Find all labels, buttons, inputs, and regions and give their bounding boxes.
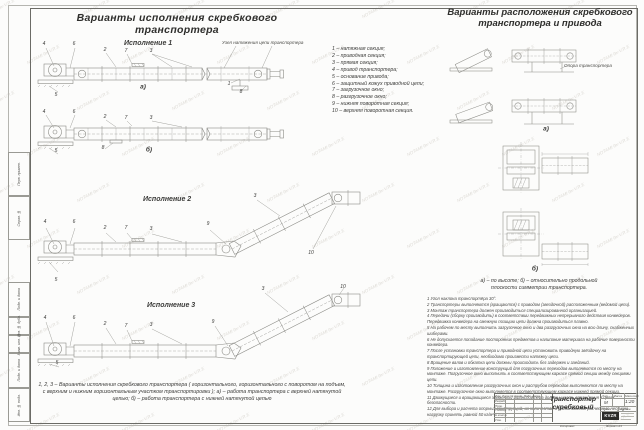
callout-label: 4 xyxy=(44,219,47,225)
callout-label: 7 xyxy=(125,48,128,54)
callout-label: 3 xyxy=(150,226,153,232)
tb-staff-nkontr: Н.контр. xyxy=(495,413,507,417)
list-item: 9 Положение и изготовление конструкций д… xyxy=(427,366,638,383)
frame-label: Инв. № подл. xyxy=(17,394,21,416)
tb-scale-header: Масштаб xyxy=(625,394,639,398)
tb-format-label: Формат А3 xyxy=(606,424,622,428)
callout-label: 6 xyxy=(73,315,76,321)
frame-cell-sprav: Справ. № xyxy=(8,196,30,240)
callout-label: а) xyxy=(140,84,146,91)
left-title: Варианты исполнения скребкового транспор… xyxy=(52,12,302,36)
layout-diagram-a2 xyxy=(448,84,618,132)
callout-label: а) xyxy=(543,126,549,133)
callout-label: 5 xyxy=(56,360,59,366)
tb-sheets-label: Листов xyxy=(620,407,631,411)
callout-label: 6 xyxy=(73,219,76,225)
callout-label: 4 xyxy=(43,41,46,47)
layout-diagram-b2 xyxy=(468,204,618,268)
callout-label: 3 xyxy=(254,193,257,199)
list-item: 7 После установки транспортера и приводн… xyxy=(427,348,638,360)
callout-label: 8 xyxy=(240,89,243,95)
callout-label: 10 xyxy=(308,250,314,256)
tb-staff-razrab: Разраб. xyxy=(495,399,505,403)
drawing-variant1-view-b xyxy=(36,108,336,160)
layout-caption-line1: а) – по высоте; б) – относительно продол… xyxy=(443,278,635,285)
list-item: 4 Передачи (сборку производить) в соотве… xyxy=(427,313,638,325)
tb-staff-utv: Утв. xyxy=(495,418,502,422)
callout-label: 1 xyxy=(228,81,231,87)
tb-scale-value: 1:20 xyxy=(625,400,634,405)
callout-label: 7 xyxy=(125,225,128,231)
callout-label: б) xyxy=(532,266,538,273)
callout-label: 7 xyxy=(125,323,128,329)
tb-lit-header: Лит. xyxy=(602,394,609,398)
tb-sheet-label: Лист xyxy=(603,407,610,411)
drawing-variant3 xyxy=(36,278,380,388)
layout-caption-line2: плоскости симметрии транспортера. xyxy=(443,285,635,292)
frame-cell-podp-data-1: Подп. и дата xyxy=(8,282,30,317)
callout-label: 3 xyxy=(150,322,153,328)
callout-label: 9 xyxy=(212,319,215,325)
callout-label: 2 xyxy=(104,225,107,231)
callout-label: 10 xyxy=(340,284,346,290)
callout-label: 3 xyxy=(150,115,153,121)
callout-label: 9 xyxy=(207,221,210,227)
tb-staff-tkontr: Т.контр. xyxy=(495,408,507,412)
layout-diagram-a1 xyxy=(448,38,618,84)
frame-cell-podp-data-2: Подп. и дата xyxy=(8,353,30,388)
callout-label: 2 xyxy=(104,321,107,327)
tb-mass-header: Масса xyxy=(614,394,623,398)
callout-label: 5 xyxy=(55,148,58,154)
frame-label: Взам. инв. № xyxy=(17,333,21,355)
document-title: Транспортер скребковый xyxy=(547,396,599,412)
frame-cell-perv-primen: Перв. примен. xyxy=(8,152,30,196)
callout-label: 4 xyxy=(44,315,47,321)
drawing-sheet: NOTAMI-9x-V.R.ENOTAMI-9x-V.R.ENOTAMI-9x-… xyxy=(0,0,644,430)
callout-label: 3 xyxy=(262,286,265,292)
frame-label: Справ. № xyxy=(17,210,21,226)
list-item: 5 На рабочем по месту выполнить загрузоч… xyxy=(427,325,638,337)
frame-label: Перв. примен. xyxy=(17,162,21,186)
layout-diagram-b1 xyxy=(468,140,618,200)
frame-cell-vzam-inv: Взам. инв. № xyxy=(8,335,30,353)
list-item: 6 Не допускается попадание посторонних п… xyxy=(427,337,638,349)
layout-caption: а) – по высоте; б) – относительно продол… xyxy=(443,278,635,292)
frame-cell-inv-podl: Инв. № подл. xyxy=(8,388,30,422)
list-item: 2 Транспортеры выполняются (вращаются) с… xyxy=(427,302,638,308)
callout-label: 5 xyxy=(55,277,58,283)
callout-label: 2 xyxy=(104,114,107,120)
variants-caption: 1, 2, 3 – Варианты исполнения скребковог… xyxy=(38,382,346,403)
right-title: Варианты расположения скребкового трансп… xyxy=(440,8,640,30)
tb-header-row: Изм. Лист № докум. Подп. Дата xyxy=(495,394,540,398)
frame-label: Подп. и дата xyxy=(17,288,21,311)
tb-lit-value: М xyxy=(604,400,608,405)
callout-label: 8 xyxy=(102,145,105,151)
company-logo: KVZR xyxy=(602,412,619,420)
callout-label: 7 xyxy=(125,115,128,121)
callout-label: 2 xyxy=(104,47,107,53)
right-title-line2: транспортера и привода xyxy=(440,19,640,30)
callout-label: 3 xyxy=(150,48,153,54)
drawing-variant1-view-a xyxy=(36,42,336,104)
callout-label: 5 xyxy=(55,92,58,98)
callout-label: 4 xyxy=(43,109,46,115)
callout-label: 6 xyxy=(73,109,76,115)
frame-label: Подп. и дата xyxy=(17,359,21,382)
callout-label: 6 xyxy=(73,41,76,47)
tb-staff-prov: Пров. xyxy=(495,404,503,408)
callout-label: б) xyxy=(146,147,152,154)
tb-copied-label: Копировал xyxy=(560,424,574,428)
